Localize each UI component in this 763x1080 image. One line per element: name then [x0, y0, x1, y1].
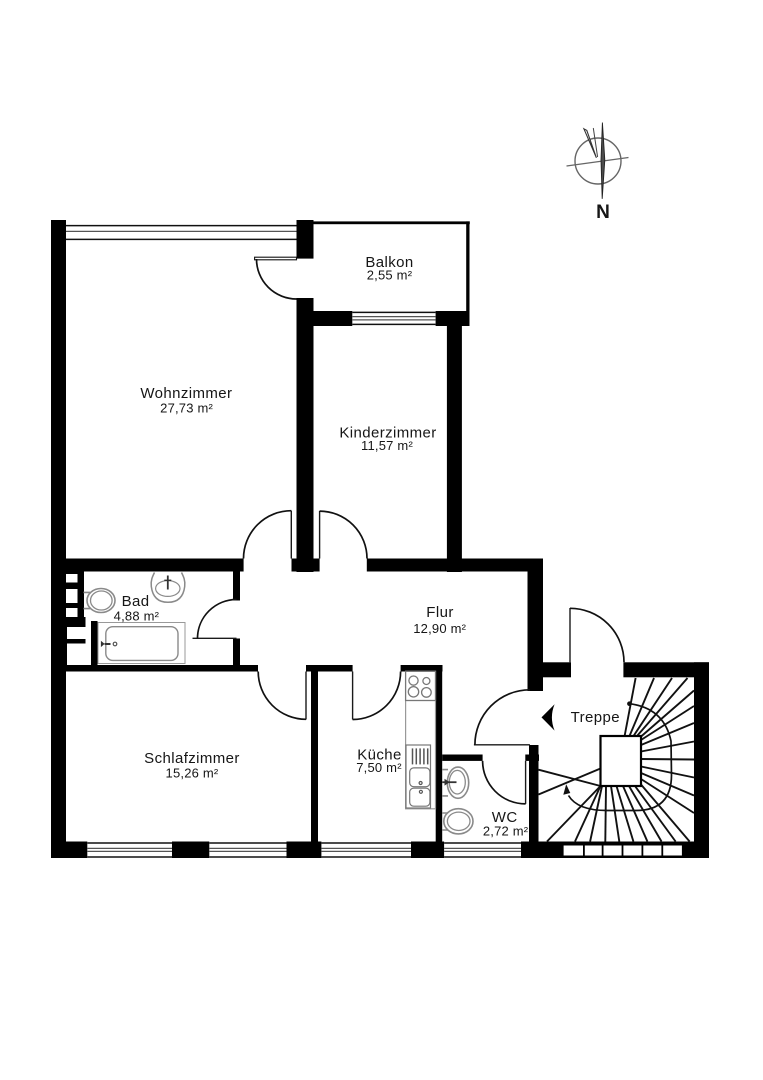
svg-text:12,90 m²: 12,90 m² — [413, 621, 466, 636]
svg-text:7,50 m²: 7,50 m² — [356, 760, 402, 775]
svg-text:Schlafzimmer: Schlafzimmer — [144, 750, 240, 767]
svg-text:Flur: Flur — [426, 604, 453, 621]
svg-text:2,72 m²: 2,72 m² — [483, 824, 529, 839]
svg-text:4,88 m²: 4,88 m² — [114, 609, 160, 624]
svg-text:Bad: Bad — [122, 593, 150, 610]
svg-text:Treppe: Treppe — [571, 709, 620, 726]
svg-text:N: N — [596, 202, 610, 223]
svg-text:Wohnzimmer: Wohnzimmer — [140, 385, 232, 402]
svg-text:11,57 m²: 11,57 m² — [361, 438, 413, 453]
svg-text:2,55 m²: 2,55 m² — [367, 267, 413, 282]
svg-text:15,26 m²: 15,26 m² — [166, 766, 219, 781]
svg-text:27,73 m²: 27,73 m² — [160, 401, 213, 416]
